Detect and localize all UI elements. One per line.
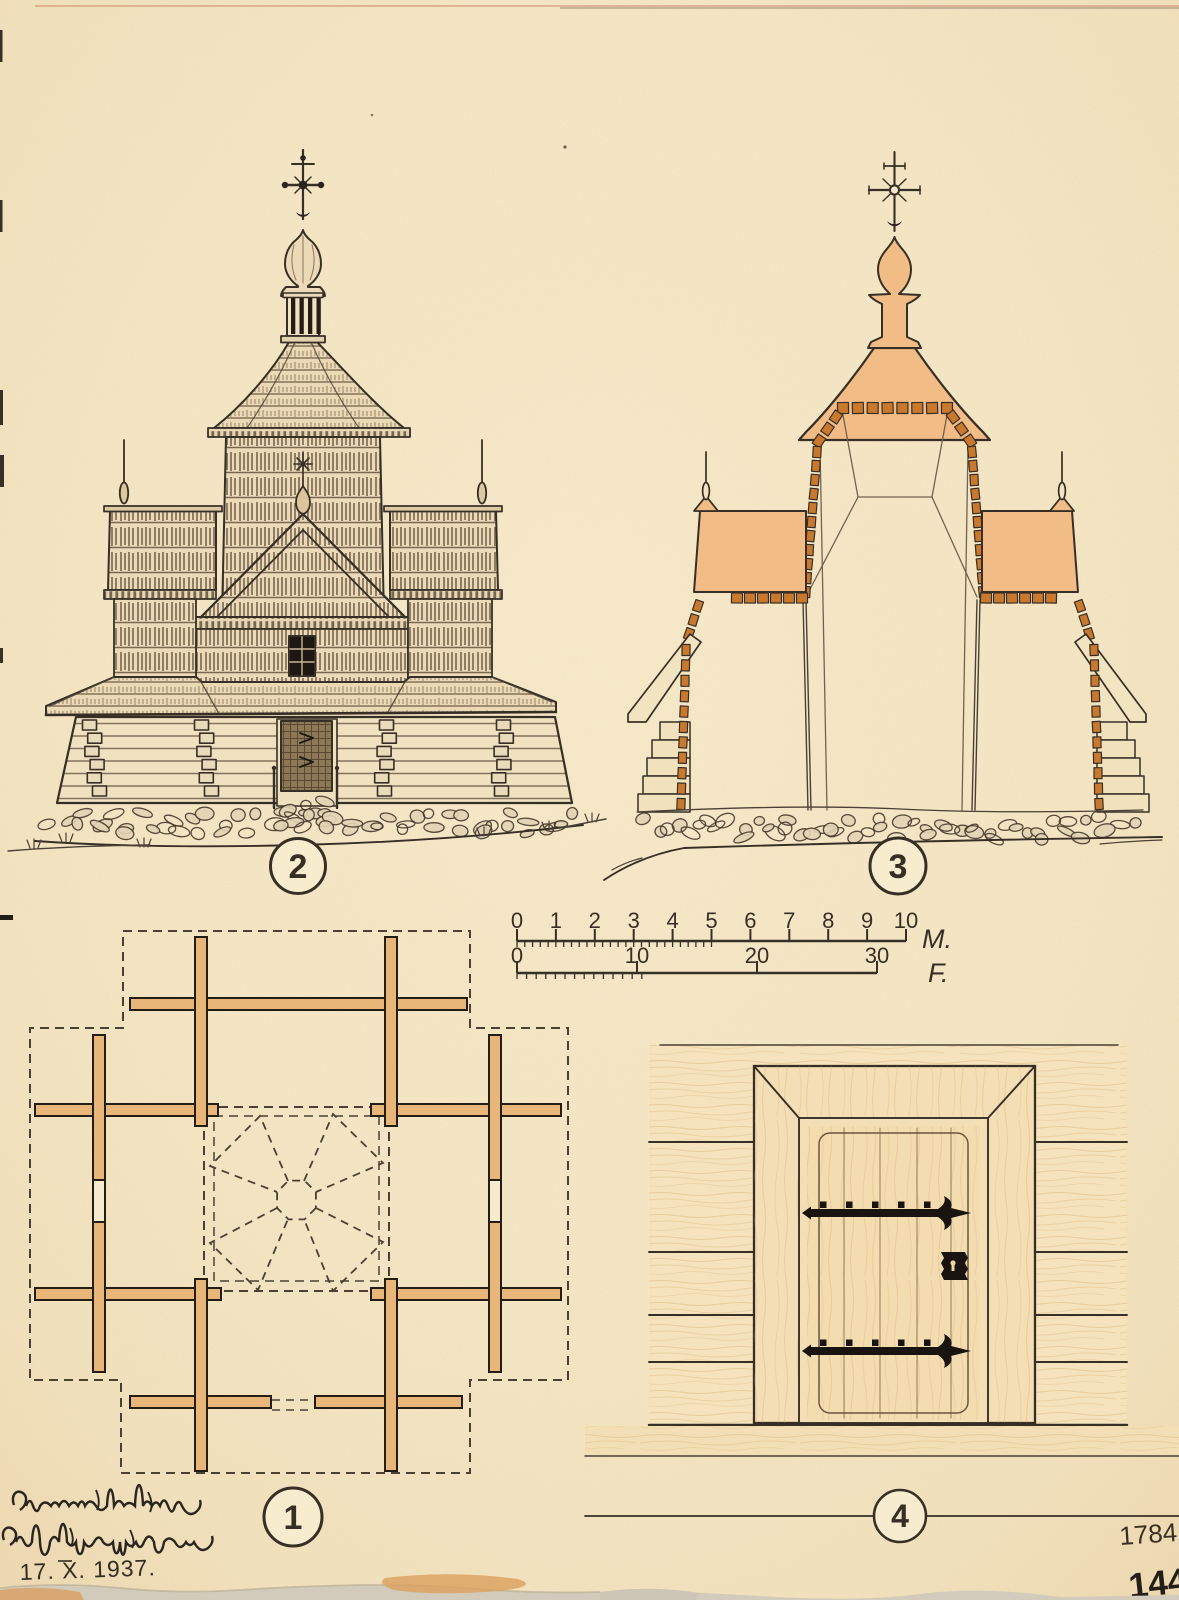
svg-text:3: 3 bbox=[628, 908, 640, 933]
svg-text:9: 9 bbox=[861, 908, 873, 933]
svg-text:0: 0 bbox=[511, 943, 523, 968]
svg-text:1: 1 bbox=[550, 908, 562, 933]
svg-text:1: 1 bbox=[284, 1499, 303, 1537]
svg-text:2: 2 bbox=[289, 848, 308, 886]
svg-text:M.: M. bbox=[922, 924, 952, 954]
svg-text:1784.: 1784. bbox=[1118, 1517, 1179, 1551]
svg-text:4: 4 bbox=[891, 1498, 909, 1534]
svg-text:144: 144 bbox=[1127, 1561, 1179, 1600]
svg-text:4: 4 bbox=[666, 908, 678, 933]
svg-text:2: 2 bbox=[589, 908, 601, 933]
svg-text:0: 0 bbox=[511, 908, 523, 933]
svg-text:17. X. 1937.: 17. X. 1937. bbox=[19, 1554, 156, 1585]
svg-text:10: 10 bbox=[894, 908, 918, 933]
svg-text:3: 3 bbox=[889, 848, 908, 886]
svg-text:8: 8 bbox=[822, 908, 834, 933]
svg-text:6: 6 bbox=[744, 908, 756, 933]
svg-text:20: 20 bbox=[745, 943, 769, 968]
svg-text:10: 10 bbox=[625, 943, 649, 968]
svg-text:30: 30 bbox=[865, 943, 889, 968]
svg-text:5: 5 bbox=[705, 908, 717, 933]
svg-text:F.: F. bbox=[928, 958, 949, 988]
svg-text:7: 7 bbox=[783, 908, 795, 933]
